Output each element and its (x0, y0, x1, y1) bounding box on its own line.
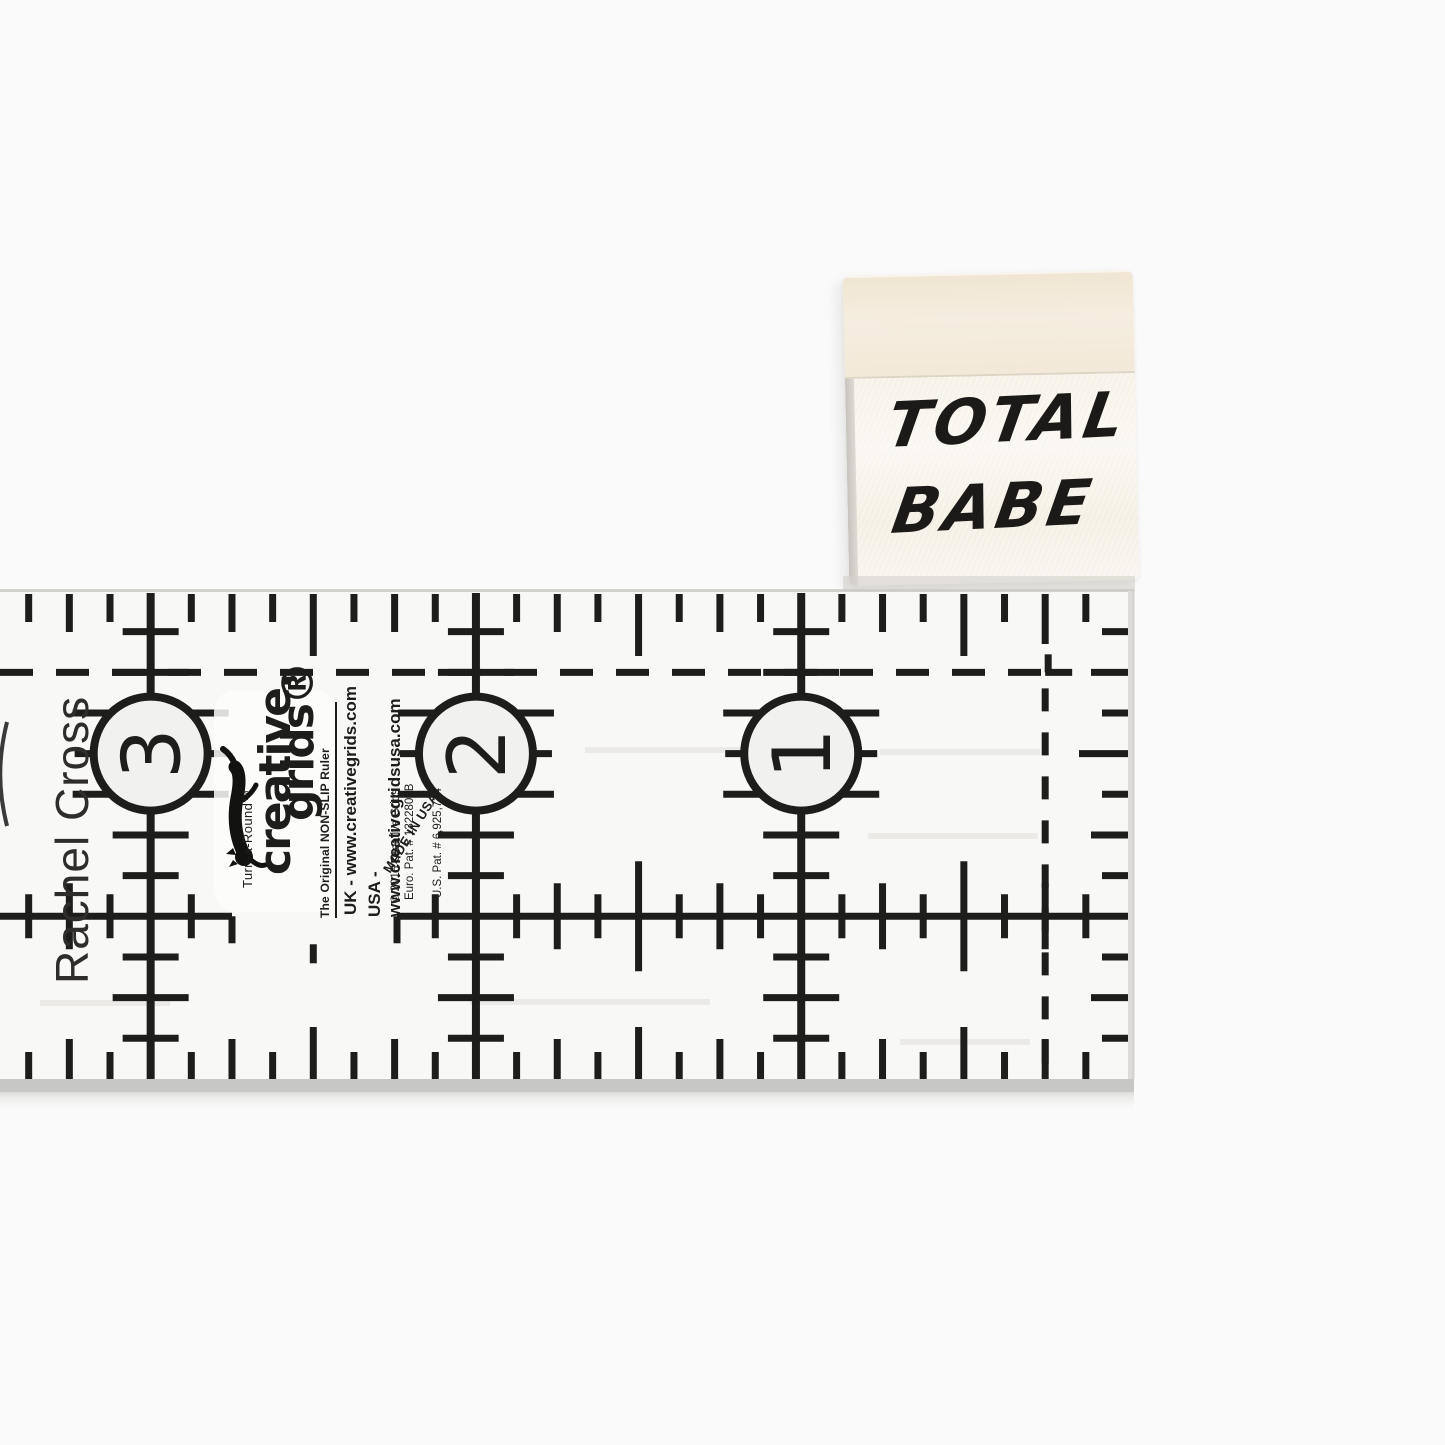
ruler-shadow (0, 1092, 1134, 1112)
brand-logo-line2: grids® (282, 686, 316, 821)
ruler-bottom-edge (0, 1079, 1134, 1092)
ruler-right-edge (1128, 591, 1133, 1079)
brand-divider (335, 702, 337, 918)
brand-url-usa: USA - www.creativegridsusa.com (365, 686, 386, 917)
ruler-top-edge (0, 589, 1134, 592)
brand-url-uk: UK - www.creativegrids.com (341, 686, 362, 915)
brand-euro-patent: Euro. Pat. # 1322809B (404, 686, 417, 900)
ruler-brand-block: Turn-a-Round™ creative. grids® The Origi… (240, 686, 445, 918)
inch-number: 3 (105, 728, 198, 779)
brand-tagline: The Original NON-SLIP Ruler (318, 686, 332, 918)
photo-background: TOTAL BABE 321 Tu (0, 0, 1445, 1445)
designer-name: Rachel Cross (42, 622, 104, 984)
inch-number: 1 (756, 728, 849, 779)
